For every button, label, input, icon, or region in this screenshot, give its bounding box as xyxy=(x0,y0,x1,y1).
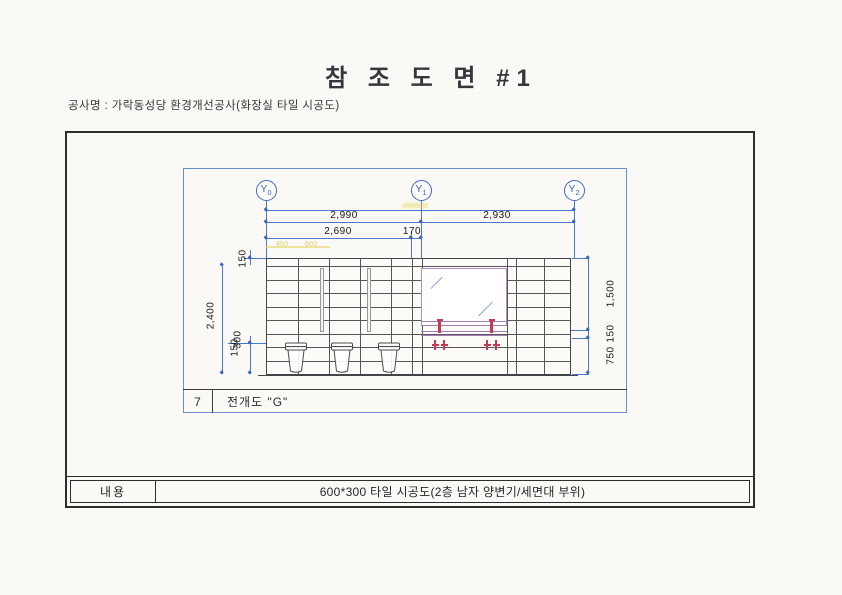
dim-right-upper: 1,500 xyxy=(606,276,617,312)
project-name-label: 공사명 : 가락동성당 환경개선공사(화장실 타일 시공도) xyxy=(68,97,340,113)
pencil-smudge xyxy=(402,203,428,208)
drawing-title-block: 7 전개도 "G" xyxy=(183,389,627,413)
water-supply-symbol xyxy=(484,340,501,353)
tile-grid-line-h xyxy=(267,334,570,335)
pencil-dim-left: 450 xyxy=(272,239,292,248)
tile-grid-line-h xyxy=(267,293,570,294)
tile-grid-line-v xyxy=(507,259,508,374)
scanned-drawing-page: 참 조 도 면 #1 공사명 : 가락동성당 환경개선공사(화장실 타일 시공도… xyxy=(0,0,842,595)
faucet xyxy=(488,319,495,333)
supply-valve xyxy=(441,344,448,346)
supply-valve xyxy=(484,344,491,346)
tile-grid-line-h xyxy=(267,361,570,362)
toilet-fixture xyxy=(376,338,402,374)
dim-wall-thickness: 170 xyxy=(399,226,425,237)
tile-wall-elevation xyxy=(266,258,571,375)
footer-content-cell: 600*300 타일 시공도(2층 남자 양변기/세면대 부위) xyxy=(156,481,749,502)
footer-label-cell: 내용 xyxy=(71,481,156,502)
tile-grid-line-v xyxy=(516,259,517,374)
dim-left-height: 2,400 xyxy=(206,300,217,332)
tile-grid-line-v xyxy=(360,259,361,374)
dim-span-right: 2,930 xyxy=(467,210,527,221)
footer-table: 내용 600*300 타일 시공도(2층 남자 양변기/세면대 부위) xyxy=(70,480,750,503)
toilet-fixture xyxy=(329,338,355,374)
dim-left-bottom-lower: 150 xyxy=(230,335,241,361)
mirror-reflection-mark xyxy=(478,301,493,316)
grid-marker-y1: Y1 xyxy=(411,180,432,201)
tile-grid-line-h xyxy=(267,347,570,348)
tile-grid-line-h xyxy=(267,320,570,321)
dimension-line xyxy=(222,264,223,374)
mirror xyxy=(421,268,507,326)
page-title: 참 조 도 면 #1 xyxy=(0,58,842,93)
grid-marker-y0: Y0 xyxy=(256,180,277,201)
floor-line xyxy=(258,375,578,377)
dim-sub-span: 2,690 xyxy=(308,226,368,237)
dim-span-left: 2,990 xyxy=(314,210,374,221)
tile-grid-line-h xyxy=(267,307,570,308)
dim-left-top: 150 xyxy=(238,246,249,272)
footer-bar: 내용 600*300 타일 시공도(2층 남자 양변기/세면대 부위) xyxy=(67,476,753,506)
toilet-fixture xyxy=(283,338,309,374)
pencil-dim-right: 600 xyxy=(301,239,321,248)
grid-marker-y2: Y2 xyxy=(564,180,585,201)
tile-grid-line-v xyxy=(412,259,413,374)
faucet xyxy=(436,319,443,333)
mirror-reflection-mark xyxy=(431,277,443,289)
water-supply-symbol xyxy=(432,340,449,353)
faucet-stem xyxy=(438,321,440,333)
tile-grid-line-v xyxy=(544,259,545,374)
tile-grid-line-h xyxy=(267,266,570,267)
supply-valve xyxy=(432,344,439,346)
tile-grid-line-h xyxy=(267,280,570,281)
flush-pipe xyxy=(320,268,324,332)
dimension-line xyxy=(266,210,574,211)
faucet-stem xyxy=(490,321,492,333)
dimension-line xyxy=(588,258,589,374)
dim-right-lower: 750 xyxy=(606,343,617,369)
counter-line xyxy=(421,335,507,336)
flush-pipe xyxy=(367,268,371,332)
drawing-number: 7 xyxy=(183,390,213,413)
drawing-title-label: 전개도 "G" xyxy=(213,390,627,413)
supply-valve xyxy=(493,344,500,346)
